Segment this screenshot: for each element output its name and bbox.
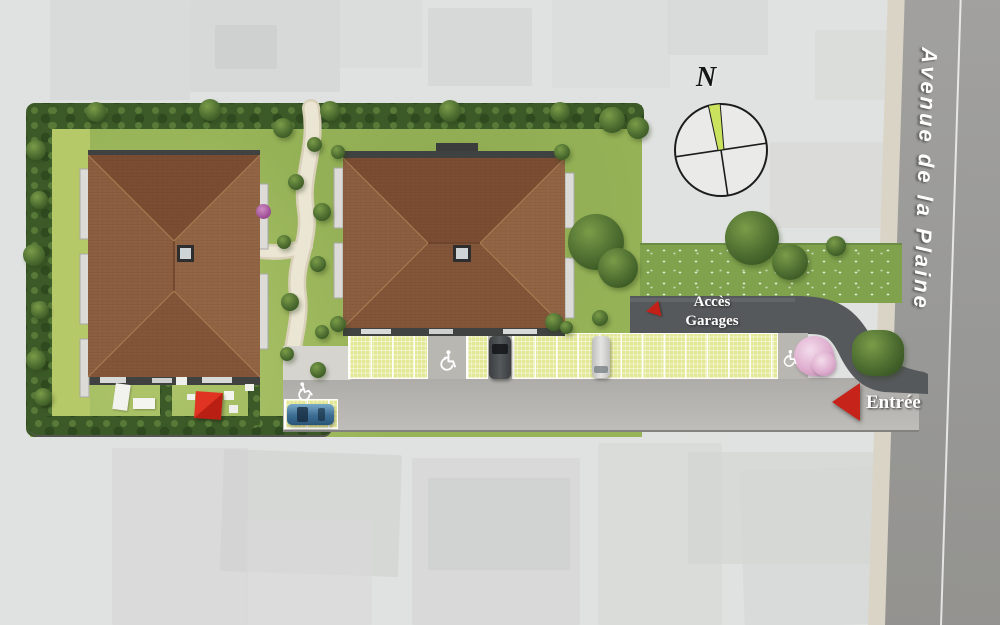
tree [826, 236, 846, 256]
large-tree [725, 211, 779, 265]
path-shrub [280, 347, 294, 361]
path-shrub [310, 256, 326, 272]
car-rear-window [318, 408, 325, 421]
tree [320, 101, 340, 121]
flower-shrub [256, 204, 271, 219]
dark-car [489, 336, 511, 379]
shrub [26, 140, 46, 160]
entrance-shrub [852, 330, 904, 376]
compass-north-label: N [696, 62, 716, 94]
garage-access-label-line1: Accès [652, 293, 772, 312]
shrub [30, 191, 48, 209]
shrub [331, 145, 345, 159]
car-windshield [297, 407, 308, 422]
pink-flowering-tree [812, 352, 836, 376]
tree [86, 102, 106, 122]
car-windshield [492, 344, 508, 354]
path-shrub [315, 325, 329, 339]
tree [550, 102, 570, 122]
shrub [554, 144, 570, 160]
compass-rose-icon [668, 100, 774, 206]
wheelchair-icon [437, 347, 459, 373]
path-shrub [277, 235, 291, 249]
tree [772, 244, 808, 280]
path-shrub [288, 174, 304, 190]
garden-furniture [187, 394, 195, 400]
path-shrub [313, 203, 331, 221]
path-shrub [307, 137, 322, 152]
left-building [80, 144, 268, 392]
garden-furniture [176, 377, 187, 385]
path-shrub [281, 293, 299, 311]
garage-access-label: Accès Garages [652, 293, 772, 331]
wheelchair-icon [781, 347, 799, 369]
entrance-arrow-icon [832, 383, 860, 421]
shrub [592, 310, 608, 326]
path-shrub [273, 118, 293, 138]
tree [627, 117, 649, 139]
shrub [26, 350, 46, 370]
shrub [31, 301, 49, 319]
garden-furniture [229, 405, 238, 413]
garden-furniture [133, 398, 155, 409]
van-windshield [594, 366, 608, 373]
tree [439, 100, 461, 122]
shrub [560, 321, 573, 334]
tree [599, 107, 625, 133]
right-building [333, 138, 575, 344]
white-van [592, 336, 610, 378]
large-tree [598, 248, 638, 288]
path-shrub [310, 362, 326, 378]
blue-car [287, 404, 334, 425]
garden-furniture [224, 391, 234, 400]
shrub [330, 316, 346, 332]
shrub [23, 244, 45, 266]
garage-access-label-line2: Garages [652, 312, 772, 331]
shrub [34, 388, 52, 406]
tree [199, 99, 221, 121]
entrance-label: Entrée [866, 391, 921, 415]
site-plan: Avenue de la Plaine [0, 0, 1000, 625]
garden-furniture [245, 384, 254, 391]
roof-skylight [453, 245, 471, 262]
red-parasol [194, 391, 223, 420]
roof-skylight [177, 245, 194, 262]
